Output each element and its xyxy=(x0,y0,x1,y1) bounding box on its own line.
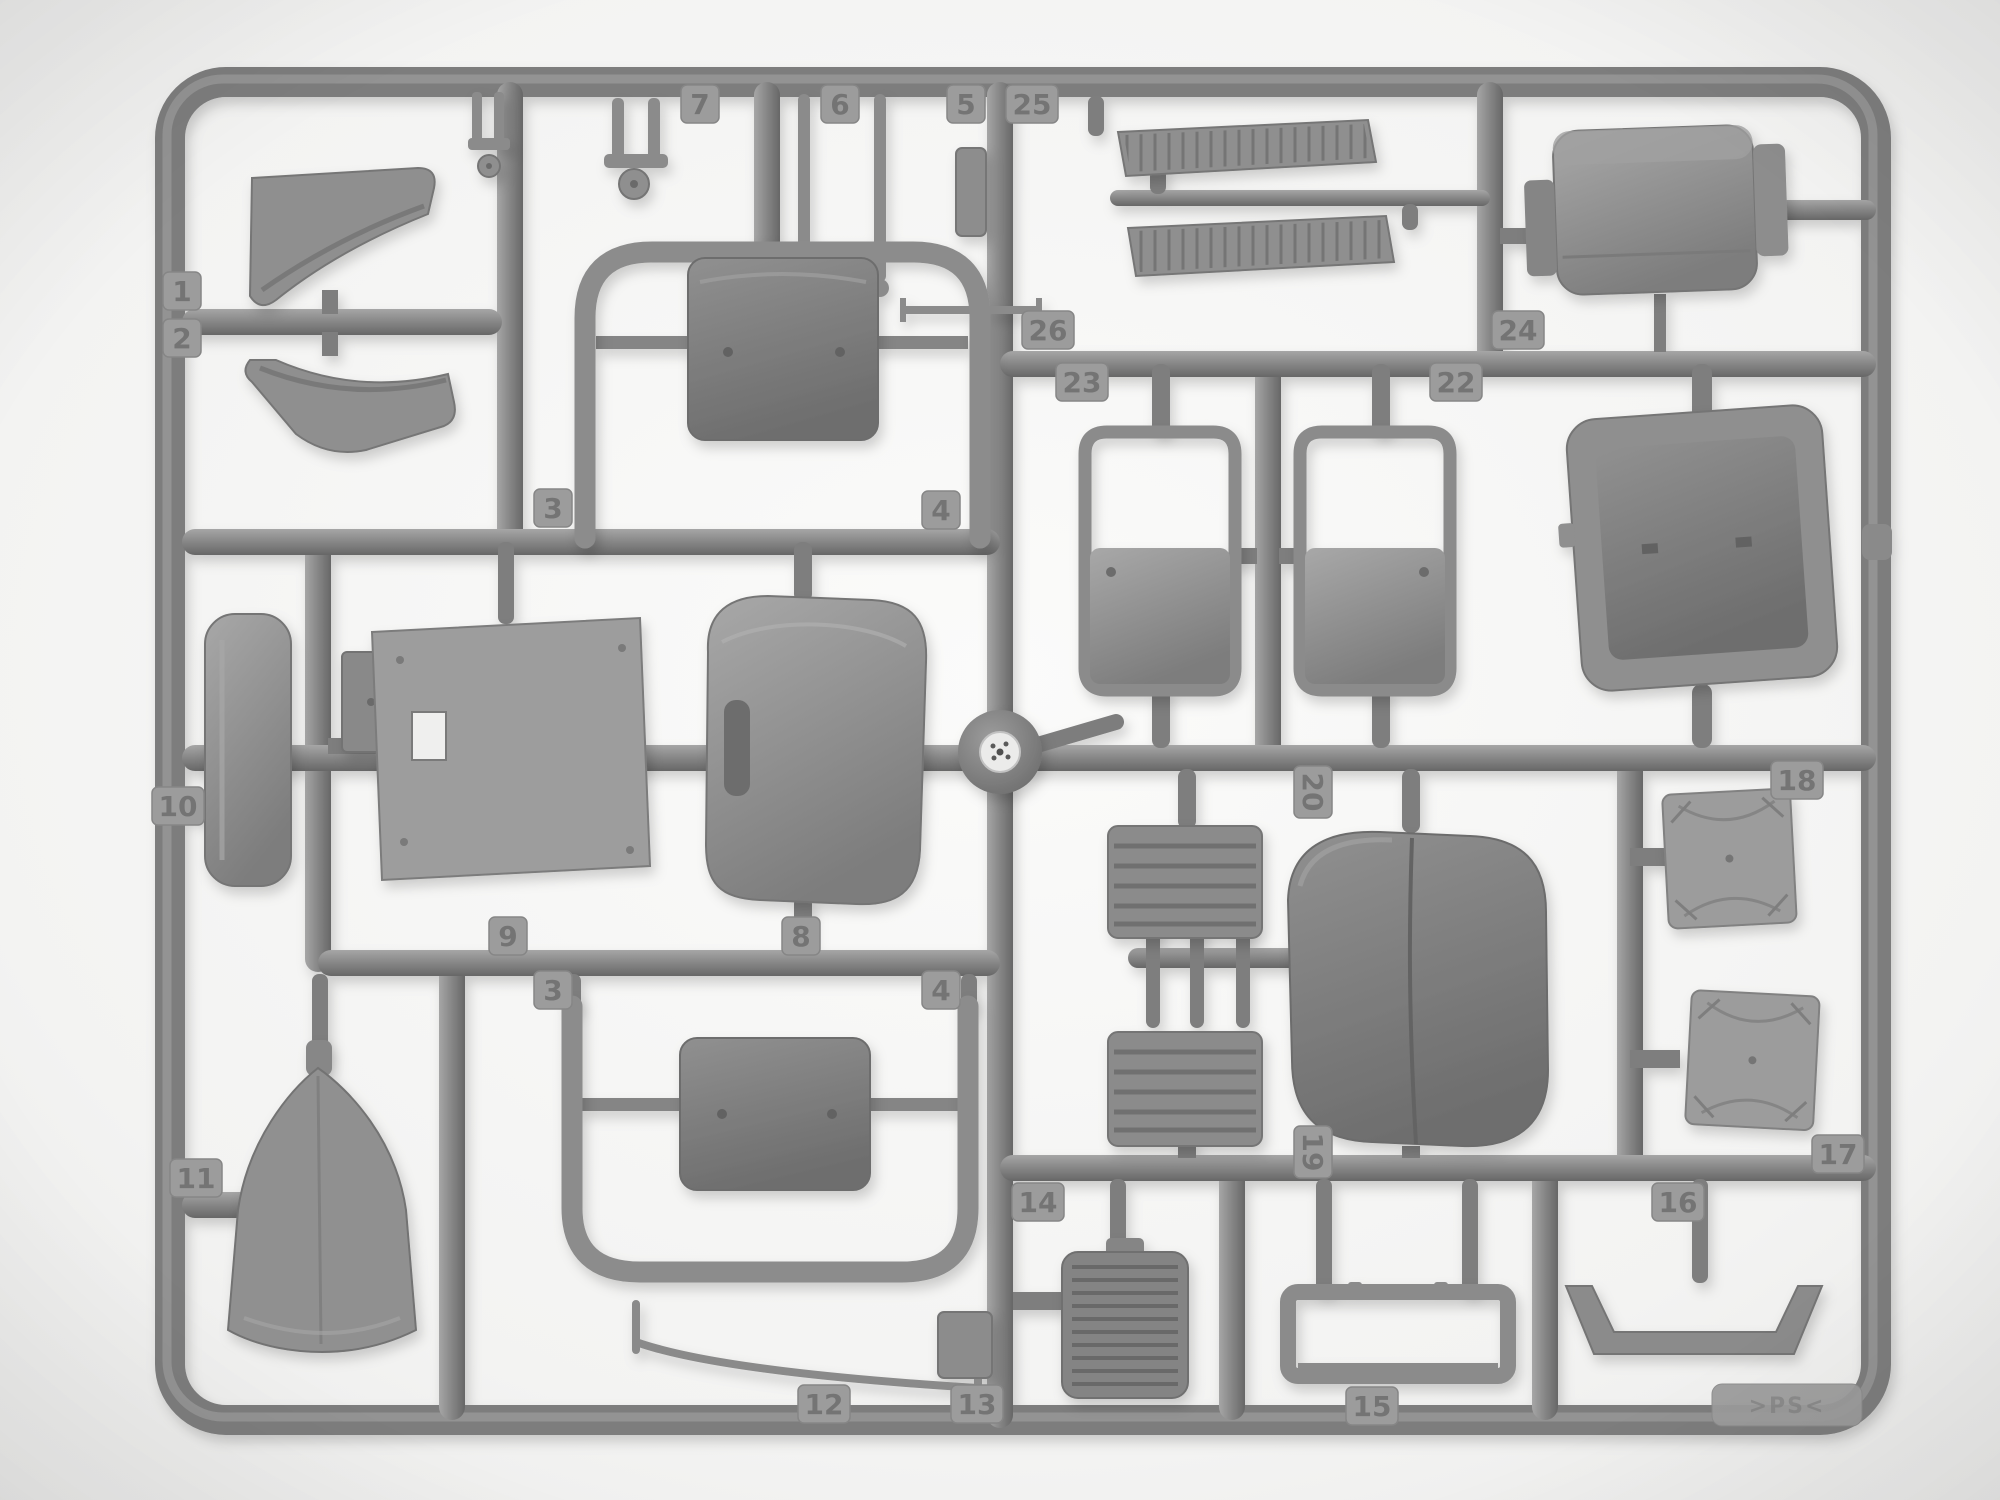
part-17-floor-panel xyxy=(1685,990,1820,1131)
part-tag-11-17: 11 xyxy=(170,1159,222,1197)
part-seat-cushion-striped-lower xyxy=(1108,1032,1262,1146)
svg-text:14: 14 xyxy=(1019,1186,1058,1219)
svg-text:26: 26 xyxy=(1029,314,1068,347)
svg-text:17: 17 xyxy=(1819,1138,1858,1171)
sprue-gate-hub xyxy=(958,710,1042,794)
svg-text:23: 23 xyxy=(1063,366,1102,399)
sprue-scene: 1276525262324223498341011201819141617121… xyxy=(0,0,2000,1500)
part-13-block xyxy=(938,1312,992,1378)
part-tag-19-20: 19 xyxy=(1294,1126,1332,1178)
part-8-cowl xyxy=(706,596,926,904)
svg-text:19: 19 xyxy=(1296,1133,1329,1172)
svg-text:9: 9 xyxy=(498,920,517,953)
part-tag-2-1: 2 xyxy=(163,319,201,357)
part-roof-panel xyxy=(1551,403,1839,693)
part-tag-6-3: 6 xyxy=(821,85,859,123)
svg-text:10: 10 xyxy=(159,790,198,823)
part-tag-15-26: 15 xyxy=(1346,1387,1398,1425)
part-tag-13-25: 13 xyxy=(951,1385,1003,1423)
part-tag-4-11: 4 xyxy=(922,491,960,529)
svg-text:8: 8 xyxy=(791,920,810,953)
part-tag-3-14: 3 xyxy=(534,971,572,1009)
sprue-photo: 1276525262324223498341011201819141617121… xyxy=(0,0,2000,1500)
part-tag-25-5: 25 xyxy=(1006,85,1058,123)
part-tag-23-7: 23 xyxy=(1056,363,1108,401)
svg-text:3: 3 xyxy=(543,492,562,525)
svg-text:24: 24 xyxy=(1499,314,1538,347)
svg-text:6: 6 xyxy=(830,88,849,121)
svg-text:7: 7 xyxy=(690,88,709,121)
part-tag-12-24: 12 xyxy=(798,1385,850,1423)
svg-text:22: 22 xyxy=(1437,366,1476,399)
svg-text:1: 1 xyxy=(172,275,191,308)
part-10-plank xyxy=(205,614,291,886)
svg-text:3: 3 xyxy=(543,974,562,1007)
part-tag-20-18: 20 xyxy=(1294,766,1332,818)
svg-text:4: 4 xyxy=(931,494,950,527)
material-mark: >PS< xyxy=(1712,1384,1862,1426)
part-seat-saddle xyxy=(1288,832,1548,1146)
part-seat-cushion-striped-upper xyxy=(1108,826,1262,938)
part-18-floor-panel xyxy=(1662,788,1797,929)
part-tag-18-19: 18 xyxy=(1771,761,1823,799)
svg-text:16: 16 xyxy=(1659,1186,1698,1219)
part-tag-10-16: 10 xyxy=(152,787,204,825)
part-tag-5-4: 5 xyxy=(947,85,985,123)
svg-text:15: 15 xyxy=(1353,1390,1392,1423)
part-24-hood xyxy=(1522,123,1790,296)
part-tag-1-0: 1 xyxy=(163,272,201,310)
svg-text:2: 2 xyxy=(172,322,191,355)
part-tag-16-22: 16 xyxy=(1652,1183,1704,1221)
part-9-cab-panel xyxy=(372,618,650,880)
part-tag-17-23: 17 xyxy=(1812,1135,1864,1173)
material-mark-text: >PS< xyxy=(1749,1394,1826,1419)
svg-text:12: 12 xyxy=(805,1388,844,1421)
part-tag-3-10: 3 xyxy=(534,489,572,527)
part-tag-8-13: 8 xyxy=(782,917,820,955)
part-tag-22-9: 22 xyxy=(1430,363,1482,401)
svg-text:5: 5 xyxy=(956,88,975,121)
part-tag-26-6: 26 xyxy=(1022,311,1074,349)
svg-text:20: 20 xyxy=(1296,773,1329,812)
svg-text:18: 18 xyxy=(1778,764,1817,797)
svg-text:4: 4 xyxy=(931,974,950,1007)
part-14-radiator xyxy=(1062,1238,1188,1398)
svg-text:13: 13 xyxy=(958,1388,997,1421)
part-tag-14-21: 14 xyxy=(1012,1183,1064,1221)
part-tag-4-15: 4 xyxy=(922,971,960,1009)
part-tag-9-12: 9 xyxy=(489,917,527,955)
part-tag-24-8: 24 xyxy=(1492,311,1544,349)
part-tag-7-2: 7 xyxy=(681,85,719,123)
svg-text:11: 11 xyxy=(177,1162,216,1195)
svg-text:25: 25 xyxy=(1013,88,1052,121)
